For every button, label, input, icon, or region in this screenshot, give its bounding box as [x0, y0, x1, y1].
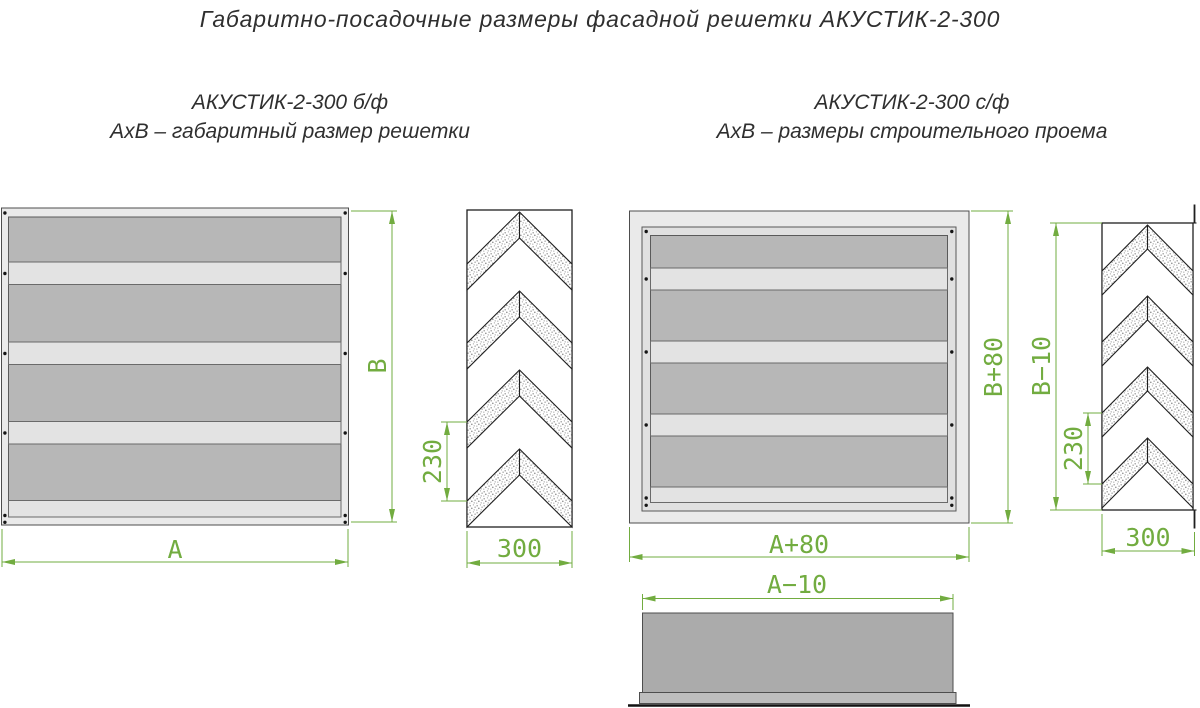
screw: [3, 352, 6, 355]
dimension-label: В: [363, 358, 392, 373]
screw: [344, 272, 347, 275]
dim-height-b: В: [351, 211, 397, 522]
left-side-view: [467, 210, 572, 527]
left-front-view: [2, 208, 349, 525]
screw: [645, 350, 648, 353]
grille-slat: [651, 487, 948, 503]
grille-slat: [651, 341, 948, 363]
dimension-label: В−10: [1027, 336, 1056, 396]
drawings-canvas: А В 230: [0, 0, 1200, 708]
screw: [344, 431, 347, 434]
dim-bottom-width-a10: А−10: [643, 570, 954, 610]
dimension-label: А+80: [769, 530, 829, 559]
screw: [950, 496, 953, 499]
screw: [645, 277, 648, 280]
bottom-view: [628, 613, 970, 706]
screw: [645, 423, 648, 426]
screw: [3, 211, 6, 214]
screw: [645, 230, 648, 233]
dimension-label: А−10: [767, 570, 827, 599]
grille-slat: [9, 501, 342, 518]
screw: [344, 211, 347, 214]
dimension-label: 300: [1125, 523, 1170, 552]
dimension-label: В+80: [979, 337, 1008, 397]
drawing-page: Габаритно-посадочные размеры фасадной ре…: [0, 0, 1200, 708]
grille-slat: [9, 342, 342, 365]
grille-slat: [9, 262, 342, 285]
dim-depth-right: 300: [1102, 514, 1195, 556]
dimension-label: 230: [1059, 426, 1088, 471]
dimension-label: 230: [418, 439, 447, 484]
screw: [344, 521, 347, 524]
dimension-label: 300: [497, 534, 542, 563]
grille-slat: [651, 268, 948, 290]
grille-slat: [9, 422, 342, 445]
screw: [344, 352, 347, 355]
screw: [950, 277, 953, 280]
dim-louver-pitch-right: 230: [1059, 413, 1102, 484]
right-side-view: [1102, 205, 1197, 529]
dimension-label: А: [167, 535, 182, 564]
screw: [950, 504, 953, 507]
screw: [645, 496, 648, 499]
screw: [645, 504, 648, 507]
dim-height-b80: В+80: [971, 211, 1013, 523]
grille-slat: [651, 414, 948, 436]
screw: [3, 431, 6, 434]
flange-plate: [640, 693, 957, 704]
screw: [3, 521, 6, 524]
dim-louver-pitch-left: 230: [418, 422, 467, 501]
screw: [3, 514, 6, 517]
dim-width-a: А: [2, 529, 348, 567]
right-front-view: [630, 211, 970, 523]
screw: [344, 514, 347, 517]
screw: [950, 423, 953, 426]
screw: [950, 350, 953, 353]
screw: [950, 230, 953, 233]
screw: [3, 272, 6, 275]
dim-width-a80: А+80: [630, 527, 970, 562]
grille-body-section: [643, 613, 954, 693]
dim-depth-left: 300: [467, 531, 572, 568]
